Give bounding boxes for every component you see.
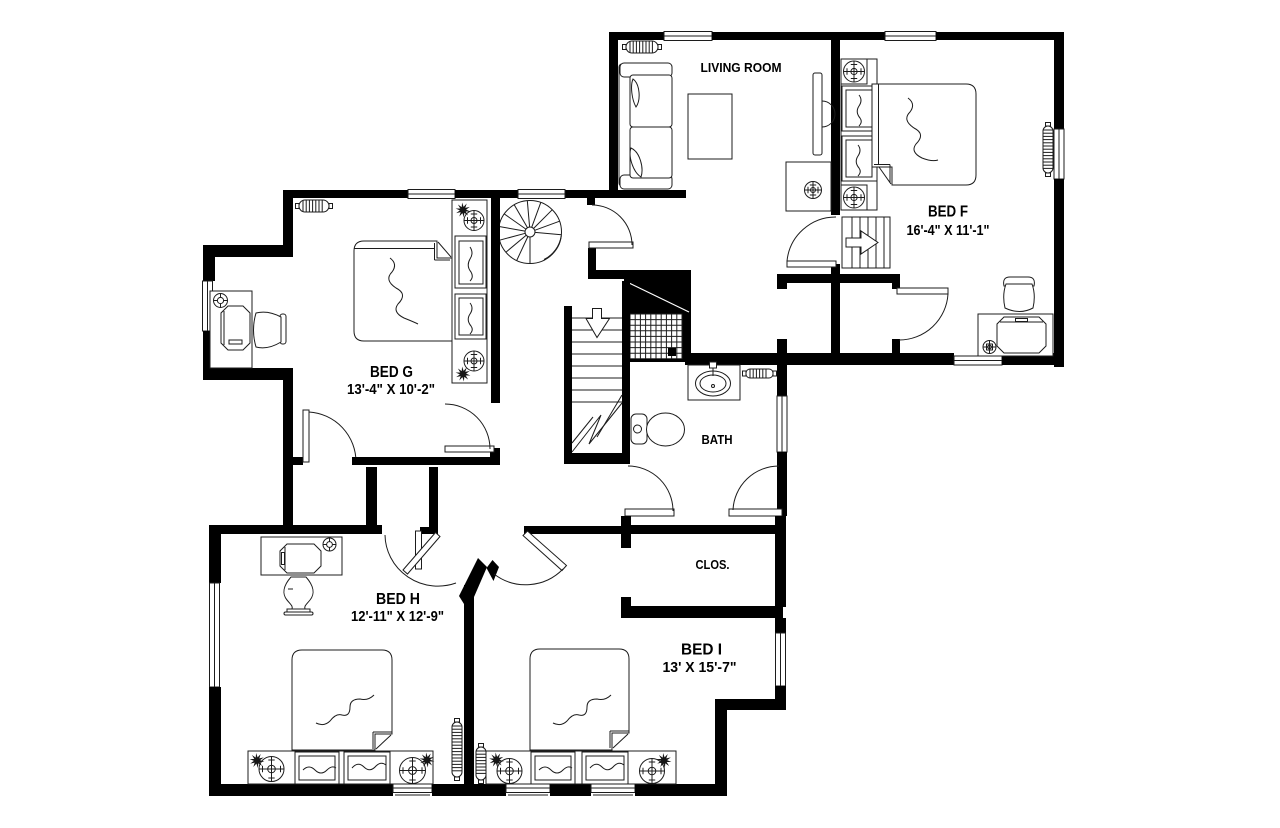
svg-text:LIVING ROOM: LIVING ROOM: [701, 61, 782, 75]
svg-text:CLOS.: CLOS.: [696, 557, 730, 572]
svg-text:BATH: BATH: [702, 432, 733, 447]
svg-text:13'-4" X 10'-2": 13'-4" X 10'-2": [347, 382, 435, 398]
svg-text:12'-11" X 12'-9": 12'-11" X 12'-9": [351, 609, 444, 625]
svg-text:BED H: BED H: [376, 591, 420, 608]
svg-text:16'-4" X 11'-1": 16'-4" X 11'-1": [907, 223, 990, 239]
svg-text:BED G: BED G: [370, 364, 413, 381]
svg-text:13' X 15'-7": 13' X 15'-7": [663, 660, 737, 676]
svg-text:BED I: BED I: [681, 642, 722, 659]
svg-text:BED F: BED F: [928, 204, 968, 221]
